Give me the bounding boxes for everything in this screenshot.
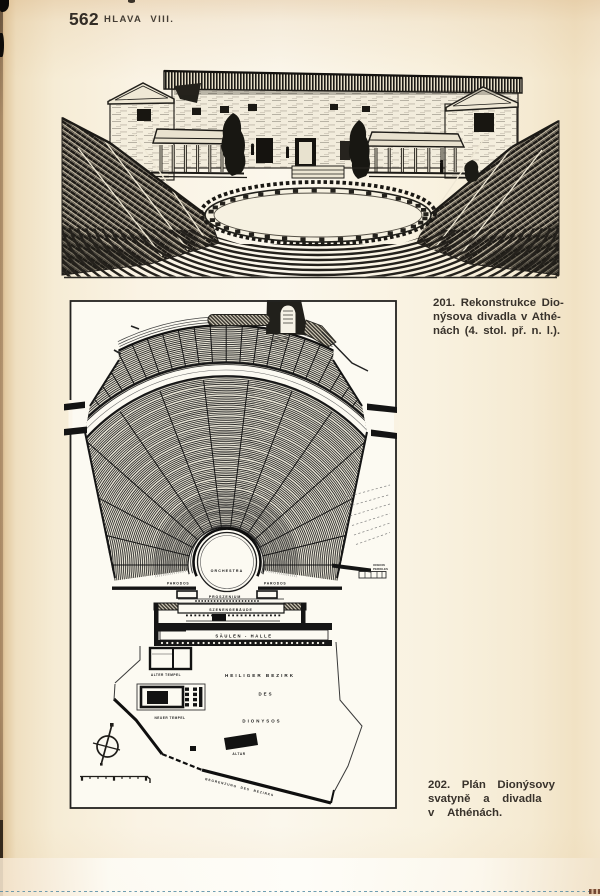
svg-text:PARODOS: PARODOS — [167, 582, 190, 586]
svg-text:HEILIGER BEZIRK: HEILIGER BEZIRK — [225, 673, 295, 678]
svg-text:DES: DES — [258, 692, 273, 697]
svg-text:SZENENGEBÄUDE: SZENENGEBÄUDE — [209, 608, 252, 612]
svg-text:ORCHESTRA: ORCHESTRA — [211, 569, 244, 573]
svg-text:PARODOS: PARODOS — [264, 582, 287, 586]
svg-text:SÄULEN - HALLE: SÄULEN - HALLE — [215, 634, 272, 639]
svg-text:ALTER TEMPEL: ALTER TEMPEL — [151, 673, 181, 677]
svg-text:ALTAR: ALTAR — [232, 752, 245, 756]
svg-text:DIONYSOS: DIONYSOS — [242, 719, 281, 724]
svg-text:PROSZENIUM: PROSZENIUM — [209, 595, 241, 599]
svg-text:NEUER TEMPEL: NEUER TEMPEL — [155, 716, 186, 720]
svg-text:PERIKLES: PERIKLES — [373, 567, 388, 571]
